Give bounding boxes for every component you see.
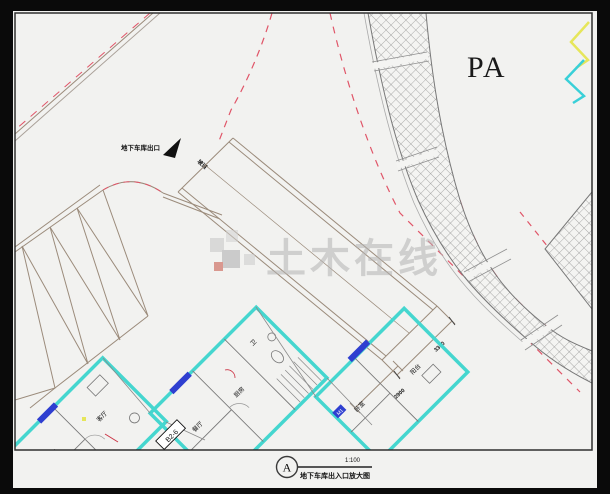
detail-bubble-label: A bbox=[283, 461, 292, 475]
cad-viewer-stage: PA 地下车库出口 坡道 bbox=[0, 0, 610, 494]
cad-drawing-canvas: PA 地下车库出口 坡道 bbox=[0, 0, 610, 494]
detail-caption: 地下车库出入口放大图 bbox=[300, 471, 370, 480]
zone-label: PA bbox=[467, 51, 507, 84]
yellow-marker bbox=[82, 417, 86, 421]
garage-exit-label: 地下车库出口 bbox=[121, 143, 160, 152]
watermark-text: 土木在线 bbox=[266, 237, 442, 281]
scale-label: 1:100 bbox=[345, 458, 361, 464]
